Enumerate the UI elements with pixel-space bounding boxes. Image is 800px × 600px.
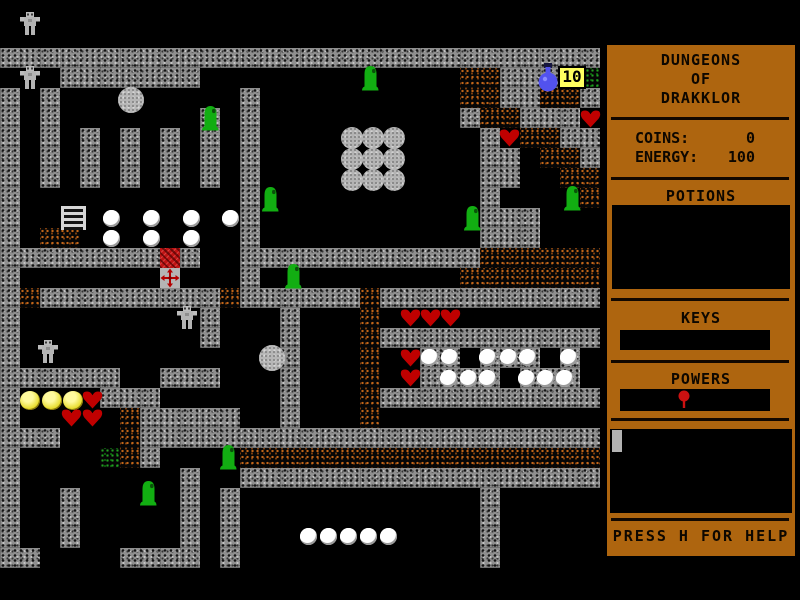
rubble-tile xyxy=(220,288,240,308)
boulder-icon xyxy=(362,127,384,149)
energy-row: ENERGY: 100 xyxy=(607,148,795,166)
orb-pickup-icon xyxy=(460,370,477,387)
coin-pickup-icon xyxy=(20,391,40,410)
robot-character xyxy=(177,306,197,330)
wall-tile xyxy=(560,128,600,148)
boulder-icon xyxy=(341,169,363,191)
wall-tile xyxy=(60,488,80,508)
wall-tile xyxy=(0,308,20,328)
orb-pickup-icon xyxy=(560,349,577,366)
orb-pickup-icon xyxy=(519,349,536,366)
wall-tile xyxy=(480,208,540,228)
wall-tile xyxy=(500,88,540,108)
orb-pickup-icon xyxy=(183,230,200,247)
divider xyxy=(611,298,789,301)
rubble-tile xyxy=(360,328,380,348)
orb-pickup-icon xyxy=(500,349,517,366)
orb-pickup-icon xyxy=(421,349,438,366)
game-title-line1: DUNGEONS xyxy=(607,51,795,69)
wall-tile xyxy=(240,228,260,248)
wall-tile xyxy=(60,528,80,548)
wall-tile xyxy=(0,488,20,508)
rubble-tile xyxy=(460,68,500,88)
orb-pickup-icon xyxy=(518,370,535,387)
boulder-icon xyxy=(341,127,363,149)
slime-monster-icon xyxy=(138,479,158,506)
wall-tile xyxy=(380,388,600,408)
rubble-tile xyxy=(460,88,500,108)
wall-tile xyxy=(280,408,300,428)
coin-pickup-icon xyxy=(42,391,62,410)
slime-monster-icon xyxy=(218,443,238,470)
rubble-tile xyxy=(580,188,600,208)
wall-tile xyxy=(480,128,500,148)
orb-pickup-icon xyxy=(183,210,200,227)
wall-tile xyxy=(480,188,500,208)
wall-tile xyxy=(240,168,260,188)
wall-tile xyxy=(0,88,20,108)
boulder-icon xyxy=(383,127,405,149)
wall-tile xyxy=(0,48,600,68)
wall-tile xyxy=(200,328,220,348)
orb-pickup-icon xyxy=(103,210,120,227)
heart-pickup-icon xyxy=(61,409,82,427)
rubble-tile xyxy=(480,248,600,268)
wall-tile xyxy=(160,148,180,168)
wall-tile xyxy=(40,128,60,148)
wall-tile xyxy=(380,328,600,348)
wall-tile xyxy=(80,148,100,168)
divider xyxy=(611,177,789,180)
wall-tile xyxy=(240,288,360,308)
boulder-icon xyxy=(362,148,384,170)
potions-inventory-box xyxy=(612,205,790,289)
wall-tile xyxy=(60,68,200,88)
rubble-tile xyxy=(360,348,380,368)
rubble-tile xyxy=(360,308,380,328)
boulder-icon xyxy=(383,169,405,191)
wall-tile xyxy=(40,148,60,168)
wall-tile xyxy=(0,388,20,408)
wall-tile xyxy=(80,168,100,188)
wall-tile xyxy=(200,308,220,328)
power-pin-icon xyxy=(677,390,691,410)
game-title-line3: DRAKKLOR xyxy=(607,89,795,107)
chest-tile-icon xyxy=(160,248,180,268)
slime-monster-icon xyxy=(360,64,380,91)
rubble-tile xyxy=(40,228,80,248)
coins-value: 0 xyxy=(746,129,755,147)
wall-tile xyxy=(220,488,240,508)
wall-tile xyxy=(220,548,240,568)
robot-character xyxy=(20,66,40,90)
wall-tile xyxy=(200,168,220,188)
rubble-tile xyxy=(360,288,380,308)
rubble-tile xyxy=(540,148,580,168)
wall-tile xyxy=(0,548,40,568)
wall-tile xyxy=(480,228,540,248)
wall-tile xyxy=(480,488,500,508)
wall-tile xyxy=(0,288,20,308)
slime-monster-icon xyxy=(462,204,482,231)
wall-tile xyxy=(0,228,20,248)
slime-monster-icon xyxy=(562,184,582,211)
wall-tile xyxy=(480,508,500,528)
boulder-large-icon xyxy=(118,87,144,113)
potion-flask-icon xyxy=(536,63,560,92)
orb-pickup-icon xyxy=(380,528,397,545)
slime-monster-icon xyxy=(260,185,280,212)
wall-tile xyxy=(480,168,520,188)
wall-tile xyxy=(180,468,200,488)
orb-pickup-icon xyxy=(320,528,337,545)
heart-pickup-icon xyxy=(400,369,421,387)
wall-tile xyxy=(200,148,220,168)
rubble-tile xyxy=(360,368,380,388)
orb-pickup-icon xyxy=(360,528,377,545)
rubble-tile xyxy=(120,428,140,448)
coins-label: COINS: xyxy=(635,129,689,147)
powers-header: POWERS xyxy=(607,370,795,388)
wall-tile xyxy=(0,188,20,208)
wall-tile xyxy=(280,328,300,348)
game-screen: DUNGEONS OF DRAKKLOR COINS: 0 ENERGY: 10… xyxy=(0,0,800,600)
ladder-icon xyxy=(61,206,86,230)
wall-tile xyxy=(0,468,20,488)
wall-tile xyxy=(140,408,240,428)
wall-tile xyxy=(280,388,300,408)
wall-tile xyxy=(280,368,300,388)
divider xyxy=(611,360,789,363)
wall-tile xyxy=(240,468,600,488)
rubble-tile xyxy=(240,448,600,468)
wall-tile xyxy=(0,448,20,468)
heart-pickup-icon xyxy=(440,309,461,327)
wall-tile xyxy=(220,528,240,548)
wall-tile xyxy=(0,128,20,148)
divider xyxy=(611,418,789,421)
rubble-tile xyxy=(520,128,560,148)
wall-tile xyxy=(0,408,20,428)
wall-tile xyxy=(480,528,500,548)
wall-tile xyxy=(460,108,480,128)
rubble-tile xyxy=(20,288,40,308)
energy-value: 100 xyxy=(728,148,755,166)
orb-pickup-icon xyxy=(479,349,496,366)
wall-tile xyxy=(120,548,200,568)
wall-tile xyxy=(0,508,20,528)
potions-header: POTIONS xyxy=(607,187,795,205)
rubble-tile xyxy=(360,408,380,428)
orb-pickup-icon xyxy=(300,528,317,545)
rubble-tile xyxy=(120,448,140,468)
wall-tile xyxy=(40,88,60,108)
wall-tile xyxy=(240,248,480,268)
message-box xyxy=(610,429,792,513)
wall-tile xyxy=(100,388,160,408)
wall-tile xyxy=(0,528,20,548)
wall-tile xyxy=(180,508,200,528)
potion-count-badge: 10 xyxy=(558,66,586,89)
orb-pickup-icon xyxy=(143,210,160,227)
heart-pickup-icon xyxy=(82,409,103,427)
wall-tile xyxy=(40,168,60,188)
wall-tile xyxy=(520,108,580,128)
orb-pickup-icon xyxy=(143,230,160,247)
wall-tile xyxy=(240,208,260,228)
rubble-tile xyxy=(480,108,520,128)
wall-tile xyxy=(280,308,300,328)
wall-tile xyxy=(80,128,100,148)
orb-pickup-icon xyxy=(440,370,457,387)
wall-tile xyxy=(240,268,260,288)
wall-tile xyxy=(140,428,600,448)
wall-tile xyxy=(40,108,60,128)
heart-pickup-icon xyxy=(420,309,441,327)
wall-tile xyxy=(120,128,140,148)
wall-tile xyxy=(240,148,260,168)
keys-inventory-bar xyxy=(620,330,770,350)
boulder-large-icon xyxy=(259,345,285,371)
wall-tile xyxy=(0,168,20,188)
coins-row: COINS: 0 xyxy=(607,129,795,147)
boulder-icon xyxy=(362,169,384,191)
orb-pickup-icon xyxy=(340,528,357,545)
game-title-line2: OF xyxy=(607,70,795,88)
robot-character xyxy=(38,340,58,364)
heart-pickup-icon xyxy=(499,129,520,147)
wall-tile xyxy=(240,108,260,128)
wall-tile xyxy=(0,208,20,228)
heart-pickup-icon xyxy=(580,110,601,128)
scroll-indicator xyxy=(612,430,622,452)
powers-inventory-bar xyxy=(620,389,770,411)
heart-pickup-icon xyxy=(400,309,421,327)
wall-tile xyxy=(140,448,160,468)
wall-tile xyxy=(240,88,260,108)
help-text: PRESS H FOR HELP xyxy=(607,527,795,545)
wall-tile xyxy=(120,168,140,188)
orb-pickup-icon xyxy=(222,210,239,227)
wall-tile xyxy=(60,508,80,528)
wall-tile xyxy=(580,148,600,168)
wall-tile xyxy=(40,288,220,308)
rubble-tile xyxy=(360,388,380,408)
coin-pickup-icon xyxy=(63,391,83,410)
sidebar-panel: DUNGEONS OF DRAKKLOR COINS: 0 ENERGY: 10… xyxy=(607,45,795,556)
wall-tile xyxy=(480,148,520,168)
boulder-icon xyxy=(341,148,363,170)
cross-power-tile-icon xyxy=(160,268,180,288)
wall-tile xyxy=(0,348,20,368)
wall-tile xyxy=(580,88,600,108)
wall-tile xyxy=(0,148,20,168)
wall-tile xyxy=(120,148,140,168)
orb-pickup-icon xyxy=(537,370,554,387)
rubble-tile xyxy=(460,268,600,288)
dungeon-map xyxy=(0,0,600,600)
slime-monster-icon xyxy=(283,262,303,289)
wall-tile xyxy=(240,128,260,148)
orb-pickup-icon xyxy=(441,349,458,366)
divider xyxy=(611,117,789,120)
robot-character xyxy=(20,12,40,36)
wall-tile xyxy=(160,368,220,388)
wall-tile xyxy=(0,368,120,388)
wall-tile xyxy=(0,328,20,348)
wall-tile xyxy=(200,128,220,148)
boulder-icon xyxy=(383,148,405,170)
wall-tile xyxy=(0,268,20,288)
wall-tile xyxy=(160,128,180,148)
moss-tile xyxy=(100,448,120,468)
orb-pickup-icon xyxy=(556,370,573,387)
orb-pickup-icon xyxy=(103,230,120,247)
wall-tile xyxy=(380,288,600,308)
orb-pickup-icon xyxy=(479,370,496,387)
wall-tile xyxy=(220,508,240,528)
slime-monster-icon xyxy=(200,104,220,131)
wall-tile xyxy=(180,528,200,548)
heart-pickup-icon xyxy=(82,391,103,409)
wall-tile xyxy=(160,168,180,188)
wall-tile xyxy=(240,188,260,208)
wall-tile xyxy=(0,108,20,128)
wall-tile xyxy=(0,428,60,448)
keys-header: KEYS xyxy=(607,309,795,327)
rubble-tile xyxy=(120,408,140,428)
heart-pickup-icon xyxy=(400,349,421,367)
wall-tile xyxy=(180,488,200,508)
divider xyxy=(611,518,789,521)
wall-tile xyxy=(480,548,500,568)
energy-label: ENERGY: xyxy=(635,148,698,166)
